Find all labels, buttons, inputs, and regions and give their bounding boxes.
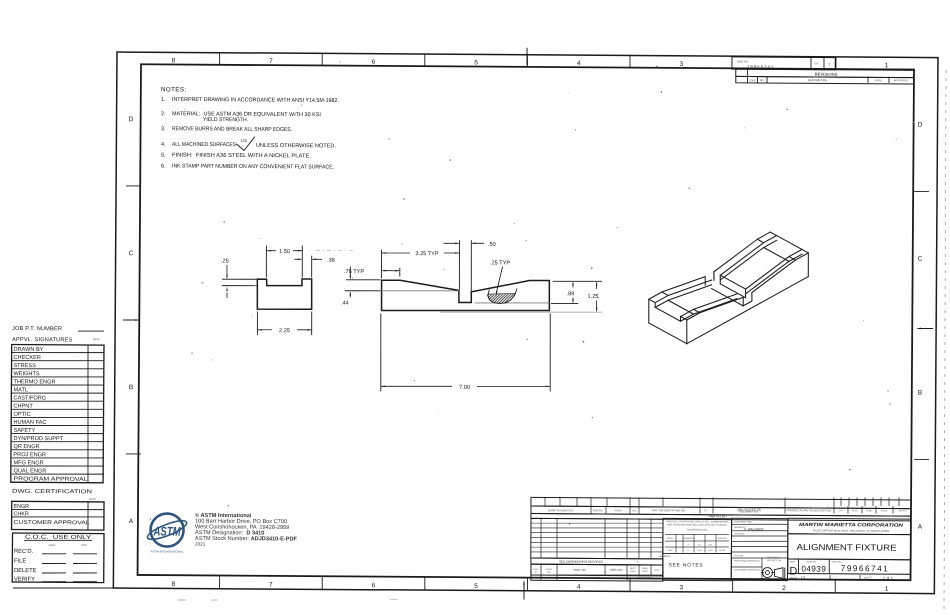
svg-text:ZONE: ZONE [866,510,873,512]
svg-text:79966741: 79966741 [841,564,889,573]
svg-text:CUSTOMER APPROVAL: CUSTOMER APPROVAL [734,569,761,572]
svg-text:3.: 3. [161,126,166,132]
svg-text:WEIGHTS: WEIGHTS [13,371,39,377]
svg-text:REVISIONS: REVISIONS [815,72,838,77]
svg-text:V. WALDROP: V. WALDROP [744,527,764,531]
svg-text:FIND NO.: FIND NO. [593,509,604,512]
svg-text:FRAC/: FRAC/ [667,537,674,540]
svg-text:PROJECTION: PROJECTION [767,560,782,562]
svg-text:1: 1 [828,62,830,66]
svg-text:±.010: ±.010 [708,550,714,552]
svg-text:NOTES:: NOTES: [161,86,186,93]
svg-text:CHECKED: CHECKED [734,533,745,535]
svg-text:79966741: 79966741 [747,64,774,69]
svg-text:PARTS LIST: PARTS LIST [709,514,727,518]
svg-text:B: B [918,390,922,397]
svg-text:QR ENGR: QR ENGR [13,444,39,450]
svg-text:1: 1 [885,586,889,593]
svg-text:±0°30: ±0°30 [719,550,726,552]
svg-text:MARTIN MARIETTA CORPORATION: MARTIN MARIETTA CORPORATION [799,522,904,528]
svg-text:1: 1 [885,62,889,69]
svg-text:FSCM NO.: FSCM NO. [806,562,817,564]
svg-text:STRESS: STRESS [13,363,36,369]
svg-text:6: 6 [372,59,376,66]
svg-text:A: A [918,524,923,531]
svg-text:DRAWN BY: DRAWN BY [13,347,43,353]
svg-text:2.: 2. [161,111,166,117]
svg-text:DATE: DATE [93,337,100,341]
svg-text:DESCRIPTION: DESCRIPTION [808,78,827,82]
svg-text:MATL: MATL [13,387,28,393]
svg-text:04939: 04939 [801,564,826,573]
svg-text:ALL MACHINED SURFACES: ALL MACHINED SURFACES [172,142,236,148]
svg-text:B: B [129,384,133,391]
svg-text:REC'D.: REC'D. [14,549,34,555]
svg-text:SIZE: SIZE [790,561,795,563]
svg-text:DELETE: DELETE [14,568,37,574]
svg-text:1/1: 1/1 [801,576,806,580]
svg-text:ZONE: ZONE [749,80,756,82]
svg-text:HUMAN FAC: HUMAN FAC [13,420,46,426]
svg-text:8: 8 [171,581,175,588]
svg-text:QTY REQD: QTY REQD [638,576,652,580]
svg-text:D: D [918,122,923,129]
svg-text:NOMENCLATURE OR DESCRIPTION: NOMENCLATURE OR DESCRIPTION [787,508,832,512]
svg-text:NEXT: NEXT [630,568,637,570]
svg-text:5.: 5. [161,153,166,159]
svg-text:6: 6 [372,582,376,589]
svg-text:.XXX: .XXX [708,545,713,547]
svg-text:APPLICATION: APPLICATION [583,576,601,580]
svg-text:THIRD ANGLE: THIRD ANGLE [767,556,782,559]
svg-text:MFG ENGR: MFG ENGR [13,460,43,466]
svg-text:DATE: DATE [49,543,56,547]
svg-text:APPROVED: APPROVED [894,78,909,82]
svg-text:1.50: 1.50 [279,249,290,255]
svg-text:2.25: 2.25 [279,328,290,334]
svg-text:.75 TYP: .75 TYP [344,269,364,275]
svg-text:ASSY: ASSY [630,570,636,573]
svg-text:FSCM: FSCM [881,510,887,512]
svg-text:4.: 4. [161,142,166,148]
svg-text:MATERIAL: MATERIAL [659,555,671,558]
svg-text:7.00: 7.00 [459,385,470,391]
svg-text:4: 4 [577,584,581,591]
svg-text:PROGRAM APPROVAL: PROGRAM APPROVAL [734,560,761,563]
svg-text:UNLESS OTHERWISE NOTED.: UNLESS OTHERWISE NOTED. [256,143,337,150]
svg-text:EFFECT: EFFECT [899,510,908,512]
svg-text:C: C [129,250,134,257]
svg-text:CAST/FORG: CAST/FORG [14,395,47,401]
svg-text:FILE: FILE [14,559,26,565]
svg-text:APPVL. SIGNATURES: APPVL. SIGNATURES [12,337,73,343]
svg-text:JOB P.T. NUMBER: JOB P.T. NUMBER [12,326,62,332]
svg-text:5: 5 [474,59,478,66]
svg-text:DECIMALS: DECIMALS [682,537,694,540]
svg-text:SEE ENGINEERING RECORDS: SEE ENGINEERING RECORDS [559,560,603,564]
svg-text:ALIGNMENT FIXTURE: ALIGNMENT FIXTURE [797,542,897,553]
svg-text:SAFETY: SAFETY [13,428,35,434]
svg-text:CHPNT: CHPNT [13,404,33,410]
svg-text:DASH: DASH [546,568,553,571]
svg-text:QTY: QTY [839,510,844,512]
svg-text:6.: 6. [161,164,166,170]
svg-text:1.25: 1.25 [588,294,599,300]
svg-text:QUAL ENGR: QUAL ENGR [14,468,47,474]
svg-text:.50: .50 [488,242,496,248]
svg-text:ANGLES: ANGLES [718,537,727,540]
svg-text:2021: 2021 [195,542,206,547]
svg-text:YIELD STRENGTH.: YIELD STRENGTH. [203,117,248,123]
svg-text:2: 2 [782,585,786,592]
svg-text:NO: NO [547,572,551,574]
svg-text:DWG NO.: DWG NO. [737,59,749,63]
svg-text:QUANTITY/DASH NO.: QUANTITY/DASH NO. [548,508,575,512]
svg-text:SHEET: SHEET [864,576,873,579]
svg-text:CHKR: CHKR [13,511,28,517]
svg-text:DOCUMENT NO.: DOCUMENT NO. [739,510,759,513]
svg-text:125: 125 [240,139,246,143]
svg-text:CHECKER: CHECKER [13,355,40,361]
svg-text:.25: .25 [221,259,229,265]
svg-text:POST OFFICE BOX 5837, ORLANDO,: POST OFFICE BOX 5837, ORLANDO, FLORIDA 3… [813,529,890,533]
svg-text:4: 4 [577,60,581,67]
svg-text:PART OR IDENTIFYING NO.: PART OR IDENTIFYING NO. [652,508,686,512]
svg-text:REMOVE BURRS AND BREAK ALL SHA: REMOVE BURRS AND BREAK ALL SHARP EDGES. [172,126,292,133]
svg-text:7: 7 [269,58,273,65]
svg-text:DWG. CERTIFICATION: DWG. CERTIFICATION [12,489,92,496]
svg-text:5: 5 [474,583,478,590]
svg-text:ENGR: ENGR [13,504,29,510]
svg-text:±1/32: ±1/32 [667,550,673,552]
svg-text:FSCM: FSCM [615,509,622,512]
svg-text:.89: .89 [567,291,575,297]
svg-text:.38: .38 [327,258,335,264]
svg-text:TOLERANCES ON:: TOLERANCES ON: [687,528,708,531]
svg-text:SH: SH [814,61,818,65]
svg-text:C: C [918,256,923,263]
svg-text:USED ON: USED ON [610,568,623,572]
svg-text:OPTIC: OPTIC [14,412,31,418]
svg-text:7: 7 [269,582,273,589]
svg-text:ON: ON [632,509,636,512]
svg-text:CONTRACT NO.: CONTRACT NO. [734,521,753,524]
svg-text:D: D [129,116,134,123]
svg-text:ASTM Stock Number: ADJD3410-E-: ASTM Stock Number: ADJD3410-E-PDF [195,536,298,543]
svg-text:.44: .44 [341,301,349,307]
svg-text:TEST: TEST [654,570,660,572]
svg-text:1 of 1: 1 of 1 [883,576,893,580]
svg-text:REV: REV [760,80,765,82]
svg-text:3.25 TYP: 3.25 TYP [415,251,439,257]
svg-text:1.: 1. [161,97,166,103]
svg-text:FINAL: FINAL [642,567,649,570]
svg-text:UNLESS OTHERWISE SPECIFIED, DI: UNLESS OTHERWISE SPECIFIED, DIMENSIONS [666,521,729,523]
svg-text:3: 3 [679,61,683,68]
svg-text:3: 3 [680,584,684,591]
svg-text:ASTM INTERNATIONAL: ASTM INTERNATIONAL [151,549,184,553]
svg-text:BY DATE: BY DATE [734,554,744,557]
svg-text:UNIT: UNIT [81,543,87,547]
svg-text:DATE: DATE [875,78,882,82]
svg-text:NOTE: NOTE [852,510,859,512]
svg-text:SEE NOTES: SEE NOTES [669,562,704,568]
svg-text:.25 TYP: .25 TYP [490,260,510,266]
svg-text:INK STAMP PART NUMBER ON ANY C: INK STAMP PART NUMBER ON ANY CONVENIENT … [172,163,334,170]
svg-text:CALC: CALC [533,568,539,571]
svg-text:DATE: DATE [89,497,96,501]
svg-text:ASSY: ASSY [642,570,648,573]
svg-text:ARE IN INCHES AND INCLUDE APPL: ARE IN INCHES AND INCLUDE APPLIED PLATIN… [667,523,727,526]
svg-text:FINISH: FINISH A36 STEEL WITH: FINISH: FINISH A36 STEEL WITH A NICKEL P… [172,152,312,159]
svg-text:A: A [129,518,134,525]
svg-text:VERIFY: VERIFY [14,577,35,583]
svg-text:INTERPRET DRAWING IN ACCORDANC: INTERPRET DRAWING IN ACCORDANCE WITH ANS… [172,97,339,104]
svg-text:PART NO.: PART NO. [574,568,587,572]
svg-text:CUSTOMER APPROVAL: CUSTOMER APPROVAL [13,520,89,527]
svg-text:PROJ ENGR: PROJ ENGR [13,452,46,458]
svg-text:8: 8 [172,57,176,64]
svg-text:SCALE: SCALE [790,576,798,579]
svg-text:PROGRAM APPROVAL: PROGRAM APPROVAL [13,476,87,483]
